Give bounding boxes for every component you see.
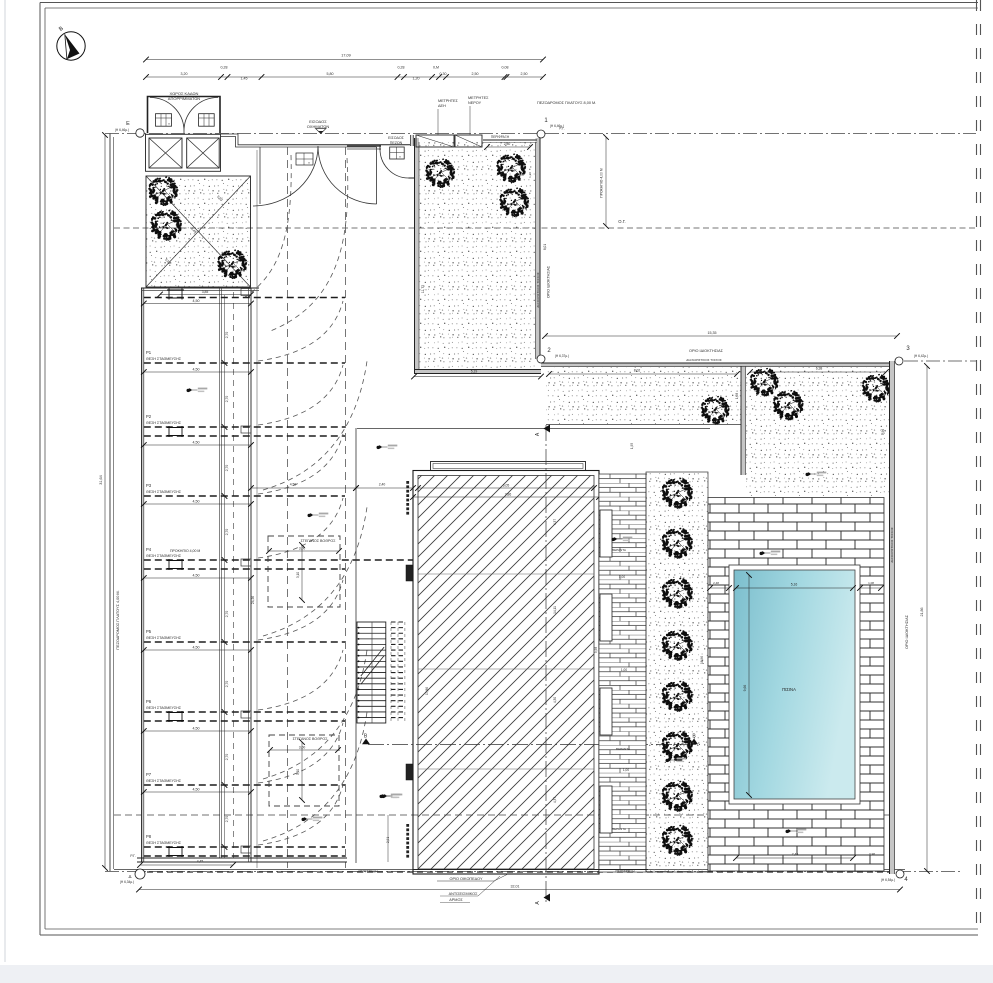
svg-text:P2: P2 — [146, 414, 152, 419]
svg-text:ΣΤΕΓΑΝΟΣ ΒΟΘΡΟΣ: ΣΤΕΓΑΝΟΣ ΒΟΘΡΟΣ — [301, 539, 337, 543]
svg-text:Ο.Γ.: Ο.Γ. — [618, 219, 625, 224]
svg-text:2,50: 2,50 — [521, 72, 528, 76]
svg-text:1,00: 1,00 — [621, 668, 627, 672]
svg-text:ΘΕΣΗ ΣΤΑΘΜΕΥΣΗΣ: ΘΕΣΗ ΣΤΑΘΜΕΥΣΗΣ — [146, 779, 182, 783]
svg-text:8,01: 8,01 — [543, 244, 547, 250]
svg-text:7,86: 7,86 — [505, 493, 512, 497]
svg-text:4,50: 4,50 — [193, 788, 200, 792]
svg-text:P7: P7 — [146, 772, 152, 777]
svg-text:2,70: 2,70 — [225, 611, 229, 618]
svg-text:(Η 6,37μ.): (Η 6,37μ.) — [555, 354, 569, 358]
svg-text:ΠΡΟΚΗΠΙΟ 4,00 Μ: ΠΡΟΚΗΠΙΟ 4,00 Μ — [170, 549, 200, 553]
svg-text:ΔΕΗ: ΔΕΗ — [438, 104, 446, 108]
svg-text:ΟΧΗΜΑΤΩΝ: ΟΧΗΜΑΤΩΝ — [307, 124, 330, 129]
svg-text:ΣΤΕΓΑΝΟΣ ΒΟΘΡΟΣ: ΣΤΕΓΑΝΟΣ ΒΟΘΡΟΣ — [293, 737, 329, 741]
svg-text:5,16: 5,16 — [791, 583, 798, 587]
svg-text:0,28: 0,28 — [398, 66, 405, 70]
svg-text:16,96: 16,96 — [700, 656, 704, 664]
svg-text:1,20: 1,20 — [413, 77, 420, 81]
svg-text:ΔΙΑΧΩΡΙΣΤΙΚΟΣ ΤΟΙΧΟΣ: ΔΙΑΧΩΡΙΣΤΙΚΟΣ ΤΟΙΧΟΣ — [536, 272, 540, 308]
svg-text:ΠΕΡΙΦΡΑΞΗ: ΠΕΡΙΦΡΑΞΗ — [615, 870, 635, 874]
svg-text:ΘΕΣΗ ΣΤΑΘΜΕΥΣΗΣ: ΘΕΣΗ ΣΤΑΘΜΕΥΣΗΣ — [146, 706, 182, 710]
svg-text:ΔΙΑΧΩΡΙΣΤΙΚΟΣ ΤΟΙΧΟΣ: ΔΙΑΧΩΡΙΣΤΙΚΟΣ ΤΟΙΧΟΣ — [890, 527, 894, 563]
svg-text:0,M: 0,M — [433, 66, 439, 70]
svg-text:ΘΕΣΗ ΣΤΑΘΜΕΥΣΗΣ: ΘΕΣΗ ΣΤΑΘΜΕΥΣΗΣ — [146, 636, 182, 640]
svg-text:7,45: 7,45 — [792, 853, 799, 857]
svg-text:1,58: 1,58 — [735, 393, 739, 399]
svg-text:4,50: 4,50 — [290, 483, 297, 487]
svg-text:1,45: 1,45 — [241, 77, 248, 81]
svg-text:Ρ.Γ.: Ρ.Γ. — [559, 127, 564, 131]
svg-text:0,98: 0,98 — [869, 852, 875, 856]
svg-text:ΟΡΙΟ ΙΔΙΟΚΤΗΣΙΑΣ: ΟΡΙΟ ΙΔΙΟΚΤΗΣΙΑΣ — [547, 265, 551, 298]
svg-text:6,38: 6,38 — [816, 367, 823, 371]
svg-text:9,66: 9,66 — [743, 685, 747, 692]
svg-text:(Η 6,46μ.): (Η 6,46μ.) — [115, 128, 129, 132]
svg-text:14,11: 14,11 — [553, 606, 557, 614]
svg-text:4,30: 4,30 — [553, 697, 557, 703]
svg-text:17,09: 17,09 — [341, 54, 351, 58]
svg-text:1,08: 1,08 — [868, 581, 874, 585]
svg-text:3,85: 3,85 — [202, 290, 209, 294]
svg-text:P1: P1 — [146, 350, 152, 355]
svg-text:2,70: 2,70 — [225, 816, 229, 823]
svg-text:P5: P5 — [146, 629, 152, 634]
svg-text:0,08: 0,08 — [502, 66, 509, 70]
svg-text:ΘΕΣΗ ΣΤΑΘΜΕΥΣΗΣ: ΘΕΣΗ ΣΤΑΘΜΕΥΣΗΣ — [146, 554, 182, 558]
svg-text:ΑΝΤΙΣΕΙΣΜΙΚΟΣ: ΑΝΤΙΣΕΙΣΜΙΚΟΣ — [449, 892, 479, 896]
svg-text:P8: P8 — [146, 834, 152, 839]
svg-text:1,95: 1,95 — [630, 443, 634, 449]
svg-text:ΠΕΖΟΔΡΟΜΟΣ ΠΛΑΤΟΥΣ 4,00 Μ.: ΠΕΖΟΔΡΟΜΟΣ ΠΛΑΤΟΥΣ 4,00 Μ. — [116, 590, 120, 649]
svg-text:0,28: 0,28 — [221, 66, 228, 70]
svg-text:2,30: 2,30 — [504, 142, 511, 146]
svg-text:1,00: 1,00 — [623, 768, 629, 772]
svg-text:2,48: 2,48 — [713, 581, 719, 585]
svg-text:17,86: 17,86 — [425, 687, 429, 695]
svg-text:1,10: 1,10 — [528, 172, 532, 178]
svg-text:ΠΕΡΙΦΡΑΞΗ: ΠΕΡΙΦΡΑΞΗ — [491, 135, 510, 139]
svg-text:24,36: 24,36 — [251, 596, 255, 604]
svg-text:ΘΕΣΗ ΣΤΑΘΜΕΥΣΗΣ: ΘΕΣΗ ΣΤΑΘΜΕΥΣΗΣ — [146, 490, 182, 494]
svg-text:11,72: 11,72 — [421, 285, 425, 293]
svg-text:8,02: 8,02 — [634, 369, 641, 373]
svg-text:Ε: Ε — [126, 121, 130, 127]
svg-text:31,64: 31,64 — [99, 475, 103, 485]
svg-text:4,37: 4,37 — [553, 797, 557, 803]
svg-text:5,80: 5,80 — [327, 72, 334, 76]
svg-text:ΠΕΡΙΦΡΑΞΗ: ΠΕΡΙΦΡΑΞΗ — [358, 870, 378, 874]
svg-text:(Η 6,34μ.): (Η 6,34μ.) — [120, 880, 134, 884]
svg-text:4,50: 4,50 — [193, 500, 200, 504]
svg-text:2,40: 2,40 — [379, 483, 386, 487]
svg-text:15,35: 15,35 — [708, 331, 717, 335]
svg-text:2,70: 2,70 — [225, 396, 229, 403]
svg-text:4,45: 4,45 — [197, 860, 204, 864]
svg-text:9,98: 9,98 — [594, 647, 598, 653]
svg-text:2,50: 2,50 — [472, 72, 479, 76]
svg-text:5,19: 5,19 — [471, 370, 478, 374]
svg-text:ΒΕΡΑΝΤΑ: ΒΕΡΑΝΤΑ — [612, 827, 627, 831]
svg-text:ΒΕΡΑΝΤΑ: ΒΕΡΑΝΤΑ — [616, 747, 631, 751]
svg-text:4,50: 4,50 — [193, 368, 200, 372]
svg-text:ΠΡΟΚΗΠΙΟ 4,00 Μ: ΠΡΟΚΗΠΙΟ 4,00 Μ — [600, 168, 604, 198]
svg-text:ΕΙΣΟΔΟΣ: ΕΙΣΟΔΟΣ — [388, 136, 404, 140]
svg-text:4,50: 4,50 — [193, 299, 200, 303]
svg-text:ΒΕΡΑΝΤΑ: ΒΕΡΑΝΤΑ — [612, 548, 627, 552]
svg-text:4,50: 4,50 — [193, 727, 200, 731]
svg-text:4,50: 4,50 — [193, 441, 200, 445]
svg-text:ΟΡΙΟ ΟΙΚΟΠΕΔΟΥ: ΟΡΙΟ ΟΙΚΟΠΕΔΟΥ — [449, 877, 482, 881]
svg-text:ΟΡΙΟ ΙΔΙΟΚΤΗΣΙΑΣ: ΟΡΙΟ ΙΔΙΟΚΤΗΣΙΑΣ — [905, 614, 909, 649]
svg-text:4,37: 4,37 — [553, 519, 557, 525]
svg-text:3,20: 3,20 — [181, 72, 188, 76]
svg-text:21,86: 21,86 — [920, 608, 924, 617]
svg-text:P3: P3 — [146, 483, 152, 488]
svg-text:3,10: 3,10 — [296, 769, 300, 775]
svg-text:2,70: 2,70 — [225, 465, 229, 472]
svg-text:ΘΕΣΗ ΣΤΑΘΜΕΥΣΗΣ: ΘΕΣΗ ΣΤΑΘΜΕΥΣΗΣ — [146, 421, 182, 425]
svg-text:2,70: 2,70 — [225, 681, 229, 688]
svg-text:P6: P6 — [146, 699, 152, 704]
svg-text:1,00: 1,00 — [619, 575, 625, 579]
svg-text:(Η 6,42μ.): (Η 6,42μ.) — [914, 354, 928, 358]
svg-text:ΘΕΣΗ ΣΤΑΘΜΕΥΣΗΣ: ΘΕΣΗ ΣΤΑΘΜΕΥΣΗΣ — [146, 841, 182, 845]
svg-text:4,50: 4,50 — [193, 646, 200, 650]
svg-text:ΜΕΤΡΗΤΕΣ: ΜΕΤΡΗΤΕΣ — [468, 96, 489, 100]
svg-text:P4: P4 — [146, 547, 152, 552]
svg-text:2,70: 2,70 — [225, 754, 229, 761]
svg-text:ΠΕΖΟΔΡΟΜΟΣ ΠΛΑΤΟΥΣ 8,00 Μ.: ΠΕΖΟΔΡΟΜΟΣ ΠΛΑΤΟΥΣ 8,00 Μ. — [537, 101, 596, 105]
svg-text:Ρ.Γ.: Ρ.Γ. — [130, 854, 135, 858]
svg-text:3,10: 3,10 — [296, 572, 300, 578]
svg-text:ΠΙΣΙΝΑ: ΠΙΣΙΝΑ — [782, 687, 796, 692]
svg-text:ΟΡΙΟ ΙΔΙΟΚΤΗΣΙΑΣ: ΟΡΙΟ ΙΔΙΟΚΤΗΣΙΑΣ — [689, 349, 724, 353]
svg-text:ΝΕΡΟΥ: ΝΕΡΟΥ — [468, 101, 482, 105]
svg-text:4,50: 4,50 — [193, 574, 200, 578]
svg-text:(Η 6,54μ.): (Η 6,54μ.) — [881, 878, 895, 882]
svg-text:ΘΕΣΗ ΣΤΑΘΜΕΥΣΗΣ: ΘΕΣΗ ΣΤΑΘΜΕΥΣΗΣ — [146, 357, 182, 361]
svg-text:2,70: 2,70 — [225, 332, 229, 339]
svg-text:0,30: 0,30 — [440, 72, 447, 76]
svg-text:6,05: 6,05 — [503, 484, 510, 488]
svg-text:5,96: 5,96 — [881, 429, 885, 435]
svg-text:32,01: 32,01 — [511, 885, 520, 889]
svg-text:ΑΡΜΟΣ: ΑΡΜΟΣ — [449, 898, 463, 902]
svg-text:ΔΙΑΧΩΡΙΣΤΙΚΟΣ ΤΟΙΧΟΣ: ΔΙΑΧΩΡΙΣΤΙΚΟΣ ΤΟΙΧΟΣ — [686, 358, 722, 362]
svg-text:ΜΕΤΡΗΤΕΣ: ΜΕΤΡΗΤΕΣ — [438, 99, 458, 103]
svg-text:2,50: 2,50 — [670, 849, 676, 853]
svg-text:2,70: 2,70 — [225, 529, 229, 536]
svg-text:Δ: Δ — [128, 874, 131, 879]
svg-text:ΠΕΖΩΝ: ΠΕΖΩΝ — [390, 141, 403, 145]
